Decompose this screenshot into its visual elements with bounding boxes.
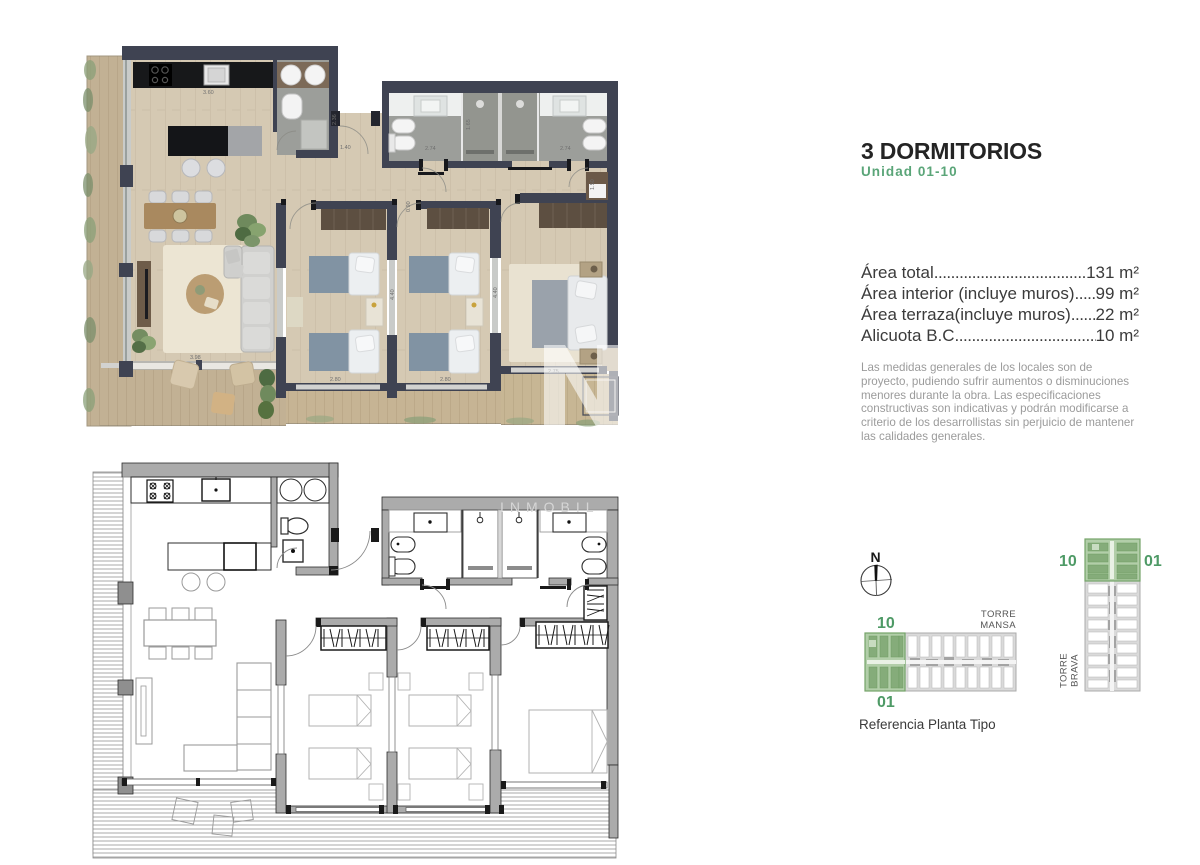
svg-text:3.60: 3.60 [203,90,214,96]
svg-text:2.80: 2.80 [440,377,451,383]
svg-text:3.98: 3.98 [190,355,201,361]
svg-text:2.80: 2.80 [330,377,341,383]
svg-text:1.65: 1.65 [466,119,472,130]
svg-text:4.40: 4.40 [493,287,499,298]
svg-text:2.74: 2.74 [560,146,571,152]
svg-text:4.40: 4.40 [390,289,396,300]
svg-text:0.90: 0.90 [406,201,412,212]
svg-text:2.36: 2.36 [332,114,338,125]
svg-text:1.40: 1.40 [340,145,351,151]
svg-text:1.50: 1.50 [590,179,596,190]
svg-text:2.74: 2.74 [425,146,436,152]
